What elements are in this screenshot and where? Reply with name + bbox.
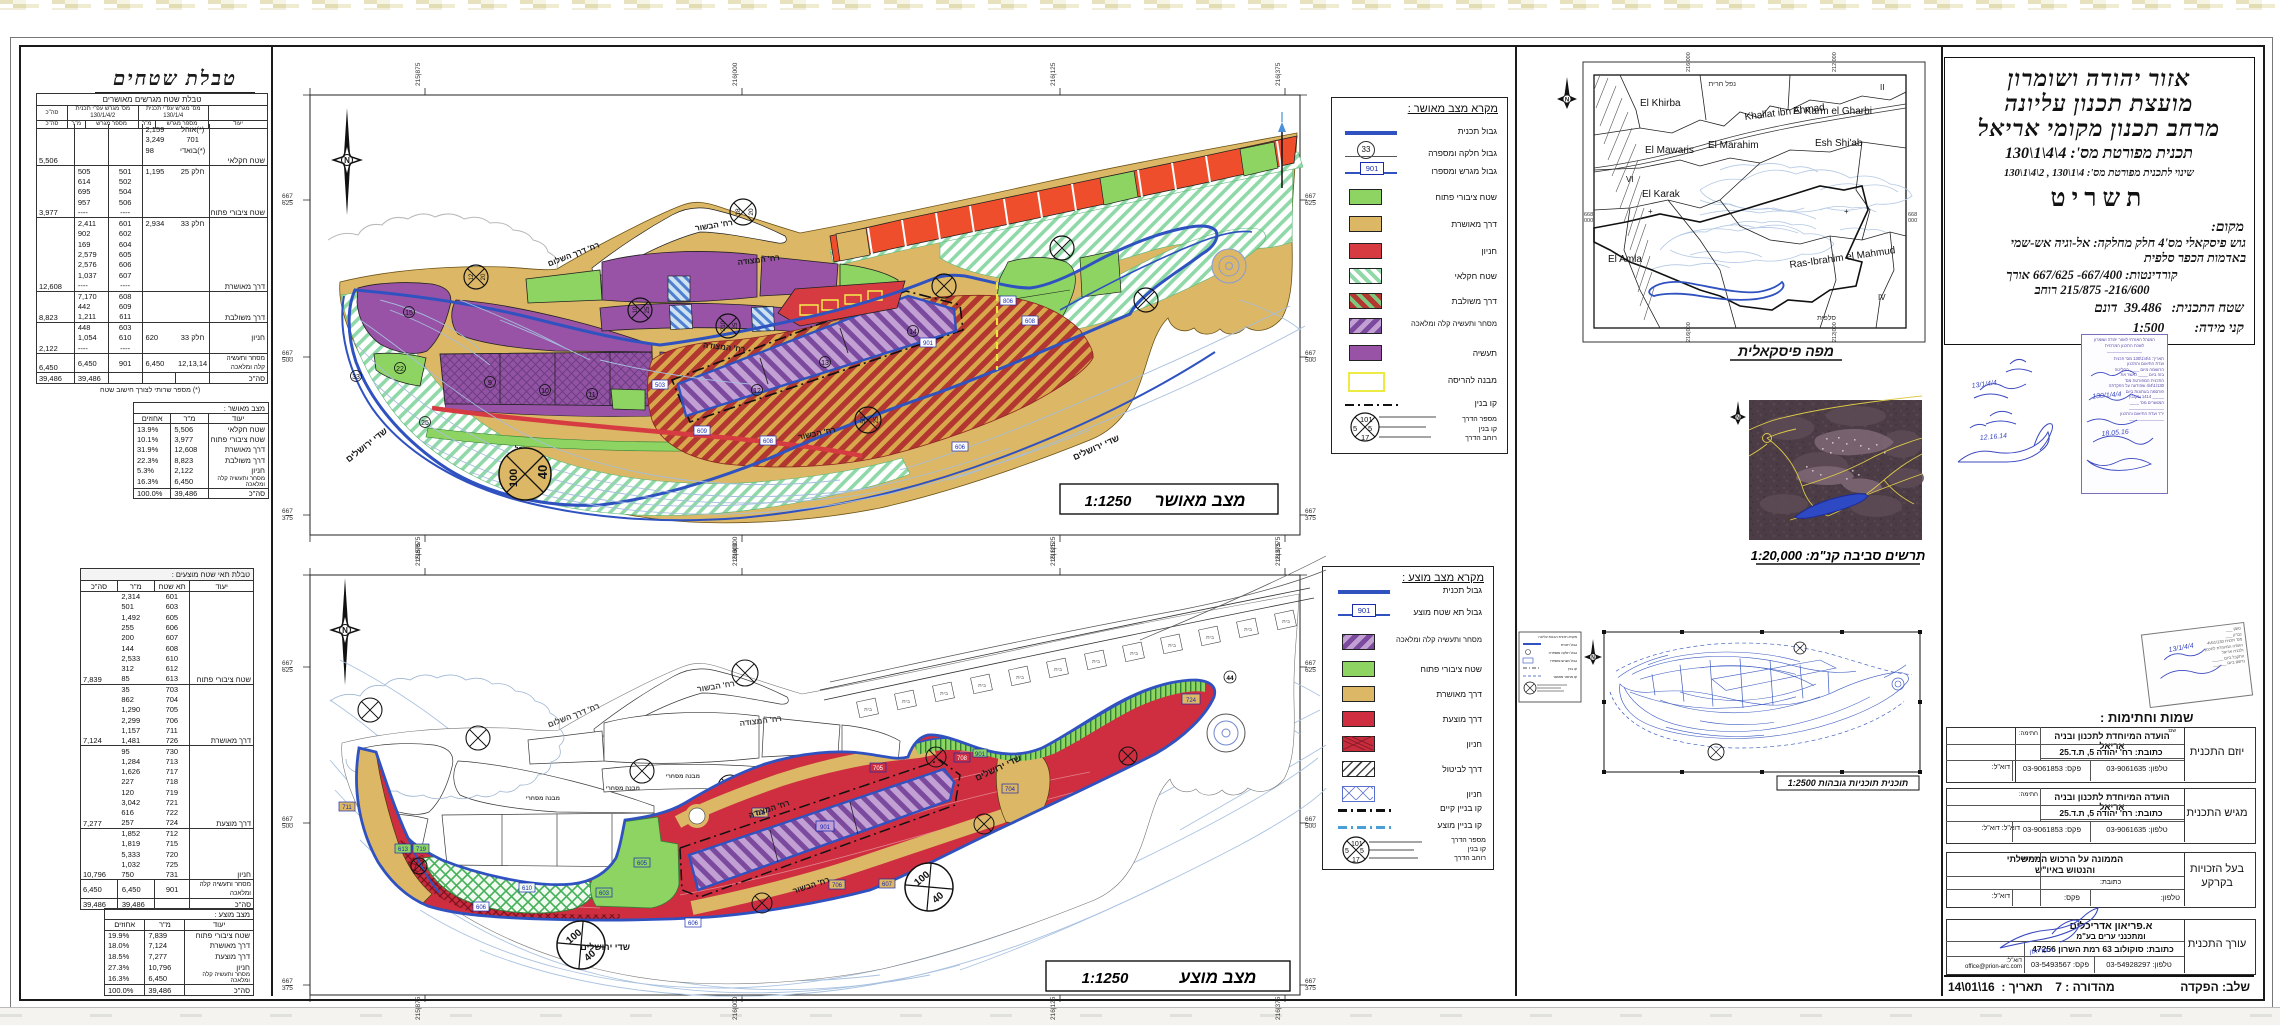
svg-text:El Khirba: El Khirba (1640, 98, 1681, 109)
svg-text:14: 14 (909, 329, 917, 336)
svg-text:625: 625 (282, 667, 293, 674)
svg-text:667: 667 (282, 350, 293, 357)
svg-text:50: 50 (860, 416, 867, 424)
svg-text:בית: בית (1016, 675, 1024, 681)
svg-text:15: 15 (405, 310, 413, 317)
svg-text:גבול תכנית: גבול תכנית (1561, 643, 1578, 647)
svg-text:705: 705 (873, 766, 884, 772)
svg-text:25: 25 (645, 306, 651, 313)
svg-text:מבנה מסחרי: מבנה מסחרי (606, 786, 640, 792)
svg-text:130/1/4/4: 130/1/4/4 (2092, 391, 2122, 401)
svg-text:216|125: 216|125 (1050, 996, 1057, 1020)
svg-text:606: 606 (955, 445, 966, 451)
svg-text:+: + (1844, 207, 1849, 216)
svg-text:9: 9 (488, 380, 492, 387)
svg-text:N: N (1565, 98, 1569, 104)
svg-text:706: 706 (832, 883, 843, 889)
svg-text:375: 375 (1305, 985, 1316, 992)
svg-text:מקרא תכנית הבנות עליונה: מקרא תכנית הבנות עליונה (1538, 635, 1577, 639)
svg-text:בית: בית (1092, 659, 1100, 665)
svg-text:375: 375 (282, 515, 293, 522)
svg-text:100: 100 (508, 469, 520, 487)
svg-text:18: 18 (735, 208, 742, 216)
svg-text:בית: בית (902, 699, 910, 705)
svg-text:El Mawaris: El Mawaris (1645, 145, 1694, 156)
svg-text:216|375: 216|375 (1275, 996, 1282, 1020)
svg-text:708: 708 (957, 756, 968, 762)
svg-text:12.16.14: 12.16.14 (1980, 433, 2008, 442)
svg-text:בית: בית (1244, 627, 1252, 633)
svg-text:216|000: 216|000 (1686, 52, 1692, 72)
svg-text:13/1/4/4: 13/1/4/4 (1971, 380, 1997, 390)
svg-text:216|375: 216|375 (1275, 542, 1282, 566)
svg-text:שדי ירושלים: שדי ירושלים (344, 426, 389, 464)
svg-text:13/1/4/4: 13/1/4/4 (2168, 643, 2194, 654)
svg-text:215|875: 215|875 (415, 996, 422, 1020)
svg-text:12: 12 (469, 273, 475, 280)
svg-text:667: 667 (1305, 816, 1316, 823)
svg-text:El Karm el Gharbi: El Karm el Gharbi (1793, 106, 1872, 117)
svg-text:000: 000 (1908, 218, 1917, 224)
svg-text:625: 625 (1305, 667, 1316, 674)
svg-text:667: 667 (1305, 193, 1316, 200)
svg-text:216|000: 216|000 (732, 62, 739, 86)
svg-text:667: 667 (282, 508, 293, 515)
svg-text:18.05.16: 18.05.16 (2101, 429, 2129, 438)
svg-text:667: 667 (282, 978, 293, 985)
svg-text:בית: בית (940, 691, 948, 697)
svg-text:503: 503 (655, 383, 666, 389)
svg-text:+: + (1648, 207, 1653, 216)
svg-text:גבול חלקה ומספרה: גבול חלקה ומספרה (1549, 651, 1578, 655)
svg-text:625: 625 (1305, 200, 1316, 207)
svg-text:608: 608 (1025, 319, 1036, 325)
svg-text:תוכנית תוכניות גובהות 1:2500: תוכנית תוכניות גובהות 1:2500 (1788, 778, 1909, 788)
svg-text:נפל חרית: נפל חרית (1708, 80, 1736, 88)
svg-text:N: N (342, 626, 348, 635)
svg-text:613: 613 (398, 847, 409, 853)
svg-text:500: 500 (282, 823, 293, 830)
svg-text:609: 609 (697, 429, 708, 435)
svg-text:25: 25 (733, 322, 739, 329)
svg-text:40: 40 (535, 465, 550, 479)
svg-text:901: 901 (923, 341, 934, 347)
svg-text:א.פריאון: א.פריאון (2028, 946, 2054, 956)
svg-text:בית: בית (978, 683, 986, 689)
svg-text:607: 607 (882, 882, 893, 888)
svg-text:500: 500 (1305, 823, 1316, 830)
svg-text:216|000: 216|000 (1686, 322, 1692, 342)
svg-text:33: 33 (352, 374, 360, 381)
svg-text:בית: בית (1168, 643, 1176, 649)
svg-text:10: 10 (541, 388, 549, 395)
svg-text:N: N (1591, 655, 1595, 661)
svg-text:תרשים סביבה קנ"מ: 1:20,000: תרשים סביבה קנ"מ: 1:20,000 (1751, 548, 1926, 563)
svg-text:El Amla: El Amla (1608, 254, 1642, 265)
svg-text:II: II (1880, 83, 1884, 92)
svg-text:215|875: 215|875 (415, 542, 422, 566)
svg-text:711: 711 (342, 805, 352, 811)
svg-text:375: 375 (282, 985, 293, 992)
svg-text:667: 667 (1305, 978, 1316, 985)
svg-text:קו בנין: קו בנין (1568, 667, 1577, 671)
svg-text:גבול מגרש ומספרו: גבול מגרש ומספרו (1550, 659, 1578, 663)
svg-text:מפה פיסקאלית: מפה פיסקאלית (1737, 343, 1834, 359)
svg-text:606: 606 (688, 921, 699, 927)
svg-text:בית: בית (1282, 619, 1290, 625)
svg-text:בית: בית (1130, 651, 1138, 657)
svg-text:216|125: 216|125 (1050, 542, 1057, 566)
svg-text:375: 375 (1305, 515, 1316, 522)
svg-text:719: 719 (416, 847, 427, 853)
svg-text:N: N (344, 156, 350, 165)
svg-text:שדי ירושלים: שדי ירושלים (580, 942, 630, 952)
svg-text:10: 10 (633, 306, 639, 313)
svg-text:25: 25 (421, 420, 429, 427)
svg-text:El Marahim: El Marahim (1708, 140, 1759, 151)
svg-text:בית: בית (1054, 667, 1062, 673)
svg-text:22: 22 (396, 366, 404, 373)
svg-text:500: 500 (1305, 357, 1316, 364)
svg-text:667: 667 (1305, 508, 1316, 515)
svg-text:704: 704 (1005, 787, 1016, 793)
svg-text:606: 606 (476, 905, 487, 911)
svg-text:קו מתאר מאושר: קו מתאר מאושר (1553, 675, 1577, 679)
svg-text:בית: בית (864, 707, 872, 713)
svg-text:901: 901 (975, 752, 986, 758)
svg-text:El Karak: El Karak (1642, 189, 1681, 200)
svg-text:מבנה מסחרי: מבנה מסחרי (666, 774, 700, 780)
svg-text:1:1250: 1:1250 (1085, 493, 1132, 510)
svg-text:מצב מאושר: מצב מאושר (1155, 491, 1246, 510)
svg-text:IV: IV (1878, 293, 1886, 302)
svg-text:212|000: 212|000 (1832, 322, 1838, 342)
svg-text:610: 610 (522, 886, 533, 892)
svg-text:806: 806 (1003, 299, 1014, 305)
svg-text:625: 625 (282, 200, 293, 207)
svg-text:210: 210 (721, 320, 727, 331)
svg-text:667: 667 (282, 660, 293, 667)
svg-text:12: 12 (753, 388, 761, 395)
svg-text:216|000: 216|000 (732, 996, 739, 1020)
svg-text:216|000: 216|000 (732, 542, 739, 566)
svg-text:סלפית: סלפית (1817, 314, 1836, 322)
svg-text:216|375: 216|375 (1275, 62, 1282, 86)
svg-text:603: 603 (599, 891, 610, 897)
svg-text:667: 667 (1305, 660, 1316, 667)
svg-text:13: 13 (821, 360, 829, 367)
svg-text:605: 605 (637, 861, 648, 867)
svg-text:25: 25 (873, 416, 880, 424)
svg-text:מבנה מסחרי: מבנה מסחרי (526, 796, 560, 802)
svg-text:216|125: 216|125 (1050, 62, 1057, 86)
svg-text:20: 20 (748, 208, 755, 216)
svg-text:בית: בית (1206, 635, 1214, 641)
svg-text:608: 608 (763, 439, 774, 445)
svg-text:20: 20 (481, 273, 487, 280)
svg-text:667: 667 (282, 193, 293, 200)
svg-text:667: 667 (1305, 350, 1316, 357)
svg-text:215|875: 215|875 (415, 62, 422, 86)
svg-text:724: 724 (1186, 698, 1197, 704)
svg-text:VI: VI (1626, 175, 1634, 184)
svg-text:901: 901 (820, 825, 831, 831)
svg-text:מצב מוצע: מצב מוצע (1179, 968, 1257, 987)
svg-text:1:1250: 1:1250 (1082, 970, 1129, 987)
svg-text:N: N (1736, 415, 1740, 421)
svg-text:212|000: 212|000 (1832, 52, 1838, 72)
svg-text:44: 44 (1226, 675, 1234, 682)
svg-text:500: 500 (282, 357, 293, 364)
svg-text:11: 11 (588, 392, 595, 399)
svg-text:667: 667 (282, 816, 293, 823)
svg-text:000: 000 (1584, 218, 1593, 224)
svg-text:Esh Shi'ab: Esh Shi'ab (1815, 138, 1863, 149)
